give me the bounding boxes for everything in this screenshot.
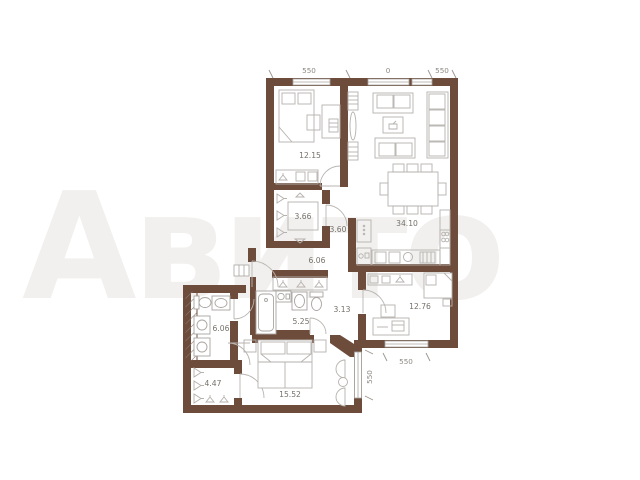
bathtub-icon bbox=[256, 291, 276, 334]
dimension-label: 550 bbox=[435, 66, 449, 75]
room-area-label: 12.76 bbox=[409, 302, 431, 311]
window bbox=[368, 79, 409, 85]
room-area-label: 12.15 bbox=[299, 151, 321, 160]
room-area-label: 3.60 bbox=[330, 225, 347, 234]
washer-icon bbox=[275, 291, 291, 302]
dimension-label: 0 bbox=[386, 66, 391, 75]
room-area-label: 3.13 bbox=[334, 305, 351, 314]
room-area-label: 6.06 bbox=[309, 256, 326, 265]
window bbox=[412, 79, 432, 85]
armchair-icon bbox=[336, 360, 348, 406]
shelving-icon bbox=[348, 92, 358, 160]
bed-icon bbox=[279, 90, 314, 142]
floor-plan-page: Авито bbox=[0, 0, 640, 480]
entry-threshold bbox=[234, 265, 249, 276]
toilet-icon bbox=[194, 296, 211, 309]
room-area-label: 6.06 bbox=[213, 324, 230, 333]
window bbox=[293, 79, 330, 85]
sink-icon bbox=[292, 292, 307, 310]
window bbox=[355, 352, 362, 398]
room-area-label: 3.66 bbox=[295, 212, 312, 221]
dimension-label: 550 bbox=[302, 66, 316, 75]
sink-icon bbox=[212, 296, 230, 310]
dimension-label: 550 bbox=[365, 370, 374, 384]
dimension-label: 550 bbox=[399, 357, 413, 366]
room-area-label: 4.47 bbox=[205, 379, 222, 388]
floor-plan: Авито bbox=[0, 0, 640, 480]
room-area-label: 34.10 bbox=[396, 219, 418, 228]
coffee-table-icon bbox=[383, 117, 403, 133]
toilet-icon bbox=[310, 292, 323, 311]
room-area-label: 5.25 bbox=[293, 317, 310, 326]
room-area-label: 15.52 bbox=[279, 390, 301, 399]
window bbox=[385, 341, 428, 347]
